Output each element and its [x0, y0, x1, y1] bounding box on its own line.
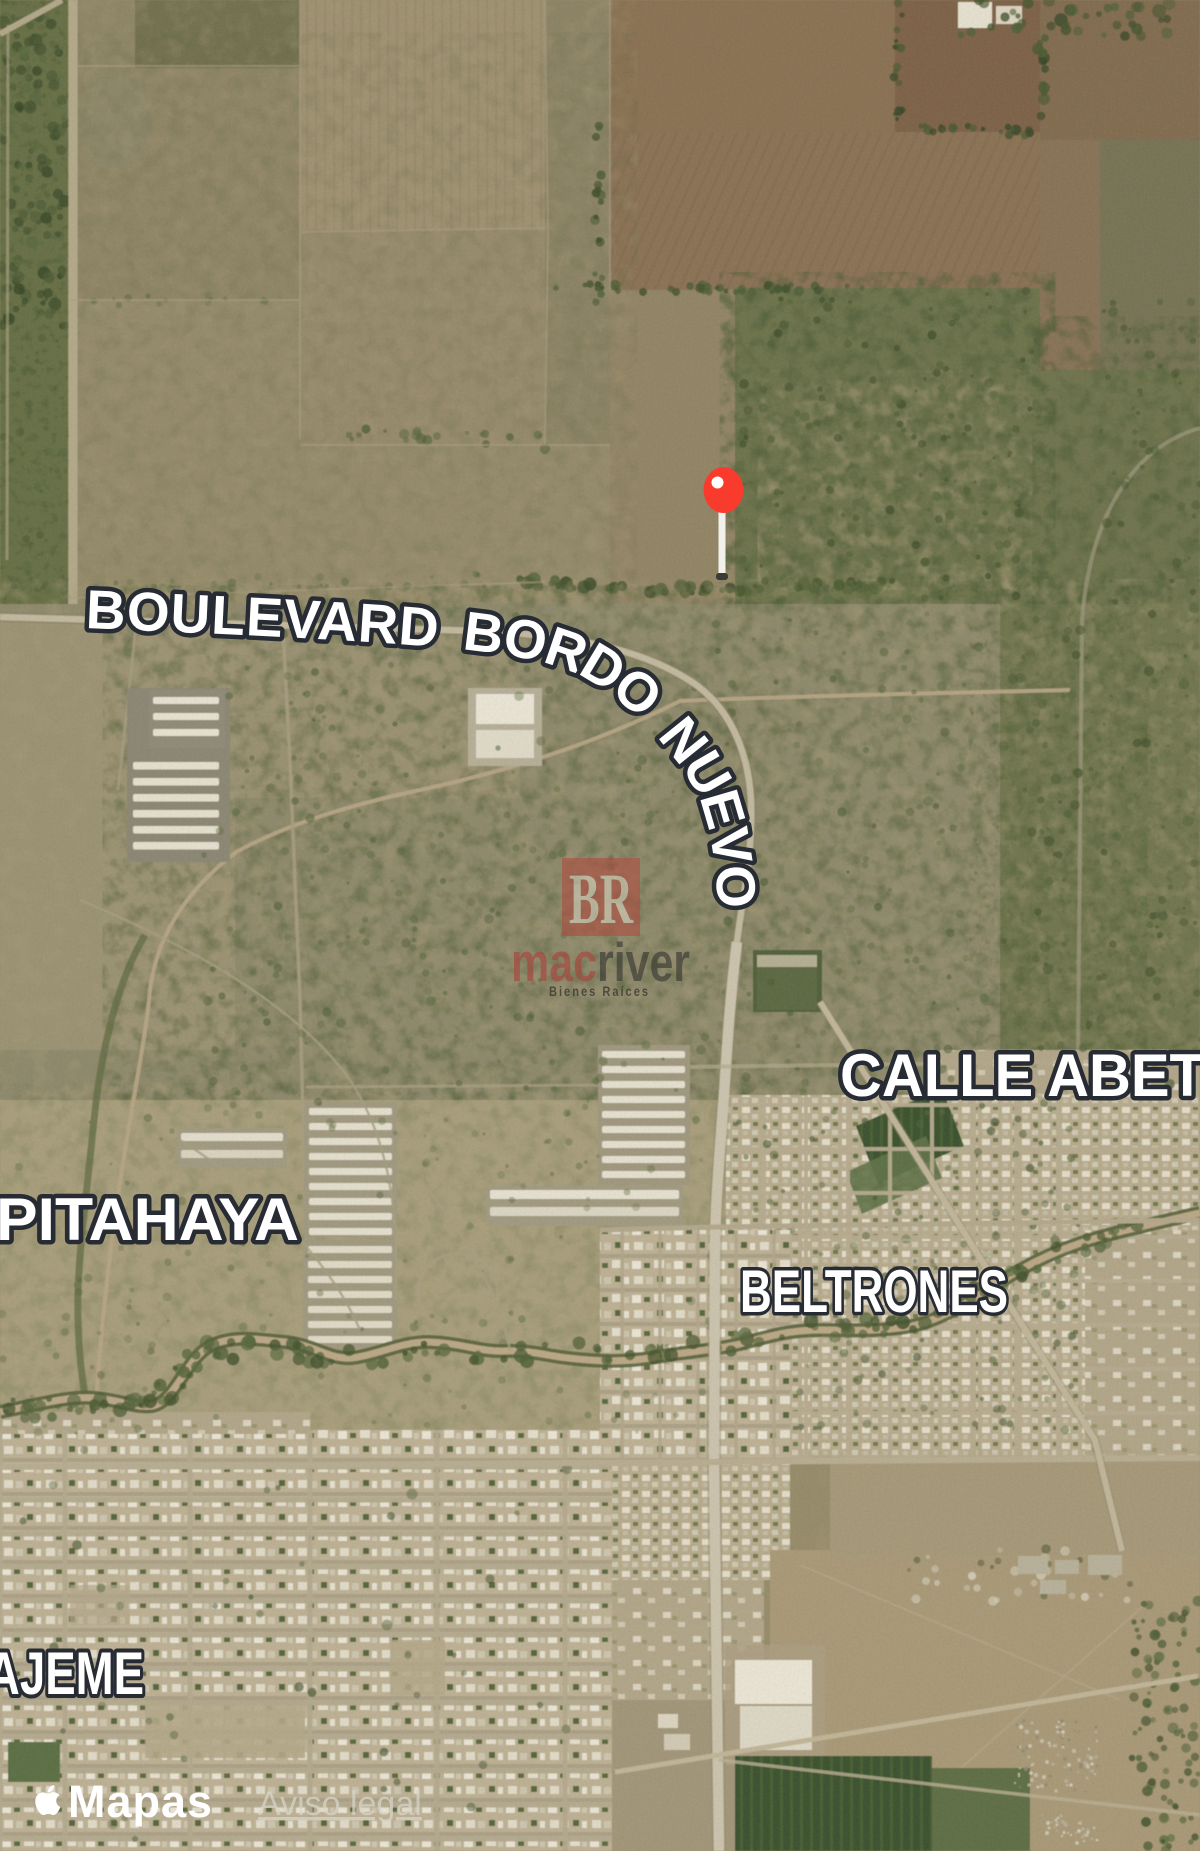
svg-text:BELTRONES: BELTRONES	[740, 1258, 1008, 1325]
svg-text:CALLE ABETO: CALLE ABETO	[840, 1042, 1200, 1109]
svg-text:Mapas: Mapas	[68, 1776, 213, 1827]
svg-text:BR: BR	[569, 859, 634, 939]
svg-text:Aviso legal: Aviso legal	[258, 1785, 422, 1823]
svg-text:CAJEME: CAJEME	[0, 1640, 144, 1707]
svg-text:Bienes Raíces: Bienes Raíces	[549, 983, 650, 999]
svg-text:PITAHAYA: PITAHAYA	[0, 1186, 299, 1253]
